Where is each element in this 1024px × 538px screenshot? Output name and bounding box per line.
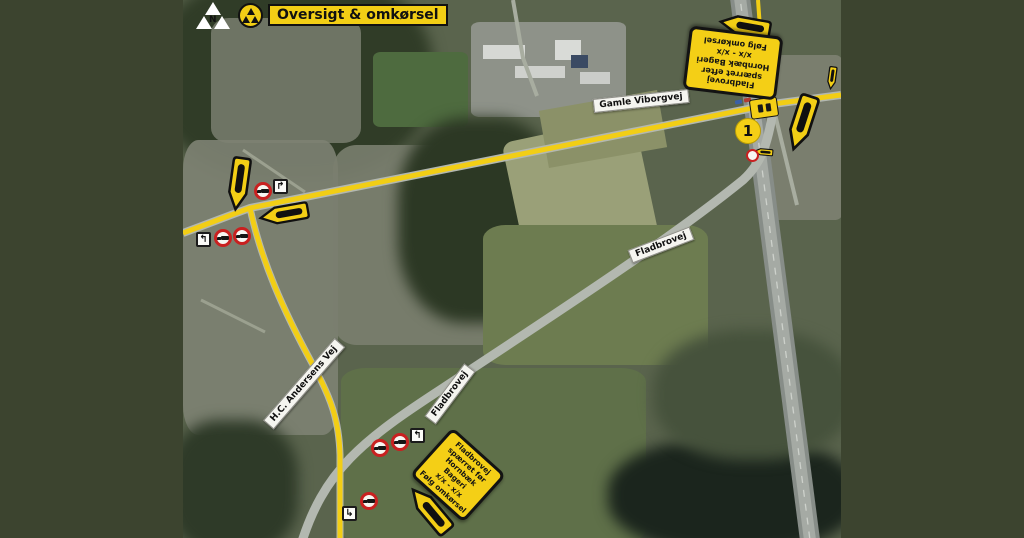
no-trucks-sign xyxy=(214,229,232,247)
turn-sign: ↳ xyxy=(342,506,357,521)
no-trucks-sign xyxy=(254,182,272,200)
truck-icon xyxy=(221,236,229,240)
no-trucks-sign xyxy=(360,492,378,510)
map-title: Oversigt & omkørsel xyxy=(268,4,448,26)
detour-marker-sign xyxy=(749,96,780,120)
truck-icon xyxy=(378,446,386,450)
north-triangle-icon xyxy=(205,2,221,15)
no-trucks-sign xyxy=(233,227,251,245)
turn-sign: ↰ xyxy=(196,232,211,247)
sign-glyph xyxy=(765,103,771,112)
north-label: N xyxy=(209,15,217,25)
truck-icon xyxy=(240,234,248,238)
turn-arrow-icon: ↱ xyxy=(276,181,284,192)
turn-arrow-icon: ↰ xyxy=(199,234,207,245)
truck-icon xyxy=(367,499,375,503)
truck-icon xyxy=(398,440,406,444)
logo-triangle xyxy=(251,16,259,23)
turn-arrow-icon: ↳ xyxy=(345,508,353,519)
truck-icon xyxy=(261,189,269,193)
point-marker-1[interactable]: 1 xyxy=(735,118,761,144)
turn-sign: ↰ xyxy=(410,428,425,443)
north-arrow: N xyxy=(195,2,231,30)
logo-triangle xyxy=(242,16,250,23)
sign-glyph xyxy=(757,104,763,113)
satellite-map-image[interactable]: ↱ ↰ ↰ ↳ 1 Gamle Viborgvej Fladbrovej Fla… xyxy=(183,0,841,538)
closure-sign-north: Fladbrovej spærret efter Hornbæk Bageri … xyxy=(682,26,783,101)
turn-sign: ↱ xyxy=(273,179,288,194)
no-trucks-sign xyxy=(391,433,409,451)
prohibition-sign xyxy=(746,149,759,162)
contractor-logo-icon xyxy=(238,3,263,28)
no-trucks-sign xyxy=(371,439,389,457)
letterboxed-page: ↱ ↰ ↰ ↳ 1 Gamle Viborgvej Fladbrovej Fla… xyxy=(0,0,1024,538)
turn-arrow-icon: ↰ xyxy=(413,430,421,441)
logo-triangle xyxy=(247,8,255,15)
